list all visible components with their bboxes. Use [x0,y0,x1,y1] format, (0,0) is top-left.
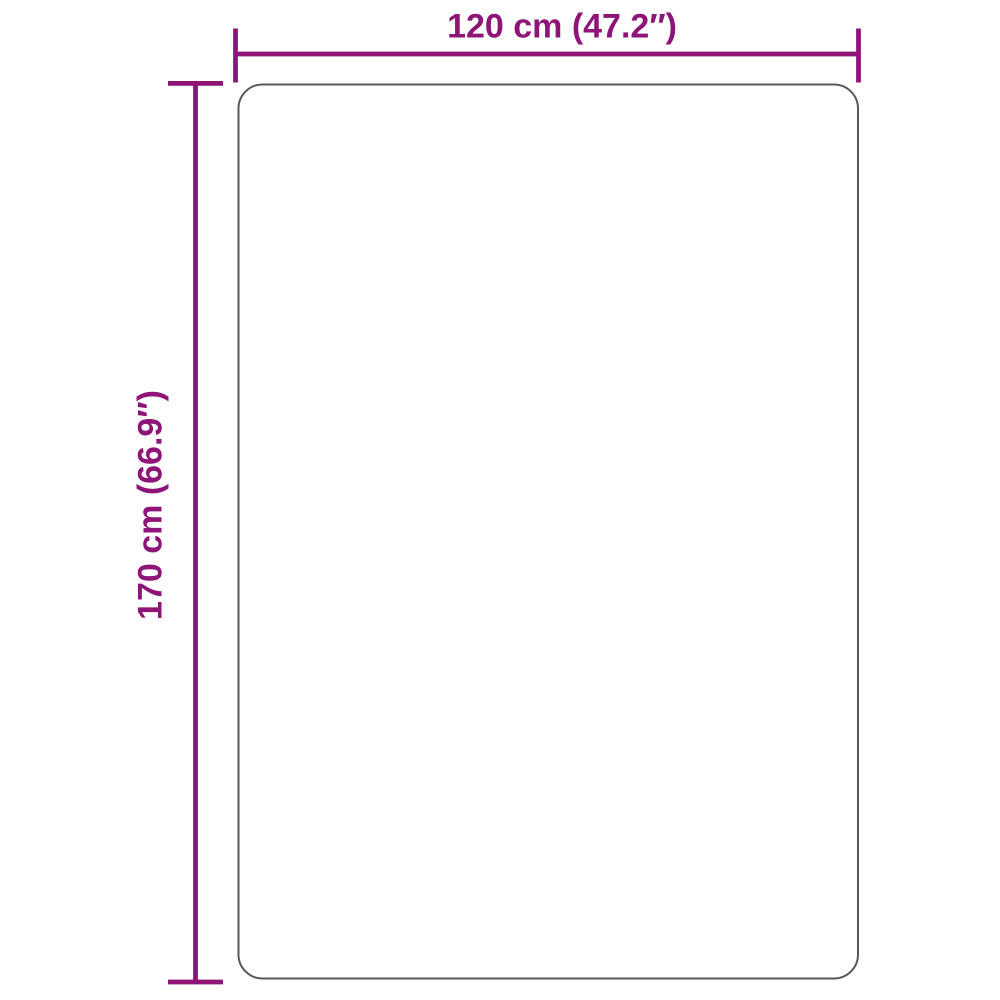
svg-text:170 cm (66.9″): 170 cm (66.9″) [132,390,170,620]
svg-text:120 cm (47.2″): 120 cm (47.2″) [447,8,677,46]
